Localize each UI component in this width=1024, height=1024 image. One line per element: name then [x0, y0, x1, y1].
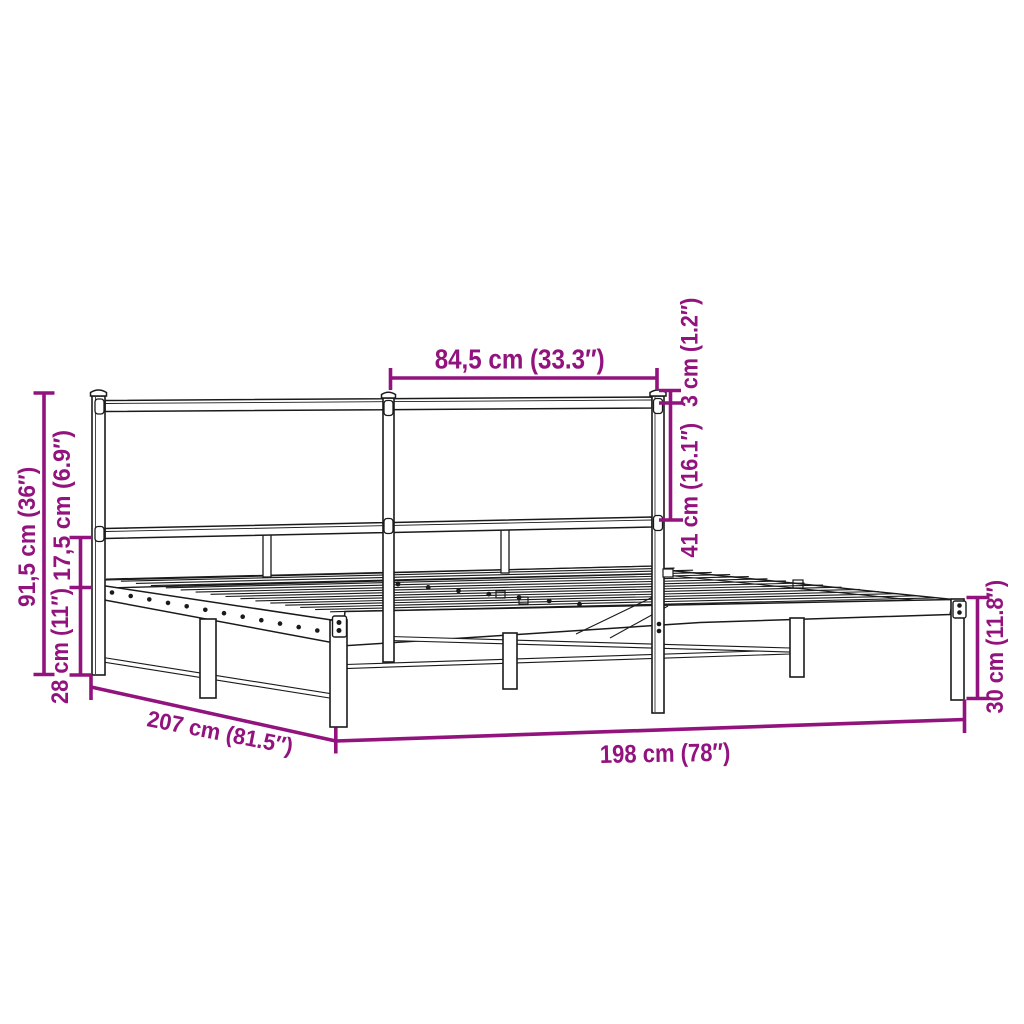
svg-text:3 cm (1.2″): 3 cm (1.2″) — [676, 298, 703, 407]
svg-text:28 cm (11″): 28 cm (11″) — [47, 588, 74, 704]
svg-text:17,5 cm (6.9″): 17,5 cm (6.9″) — [49, 430, 76, 581]
svg-text:198 cm (78″): 198 cm (78″) — [600, 739, 731, 769]
svg-text:41 cm (16.1″): 41 cm (16.1″) — [676, 423, 703, 558]
svg-text:84,5 cm (33.3″): 84,5 cm (33.3″) — [435, 344, 605, 375]
svg-text:30 cm (11.8″): 30 cm (11.8″) — [982, 580, 1009, 714]
svg-text:91,5 cm (36″): 91,5 cm (36″) — [14, 467, 41, 607]
